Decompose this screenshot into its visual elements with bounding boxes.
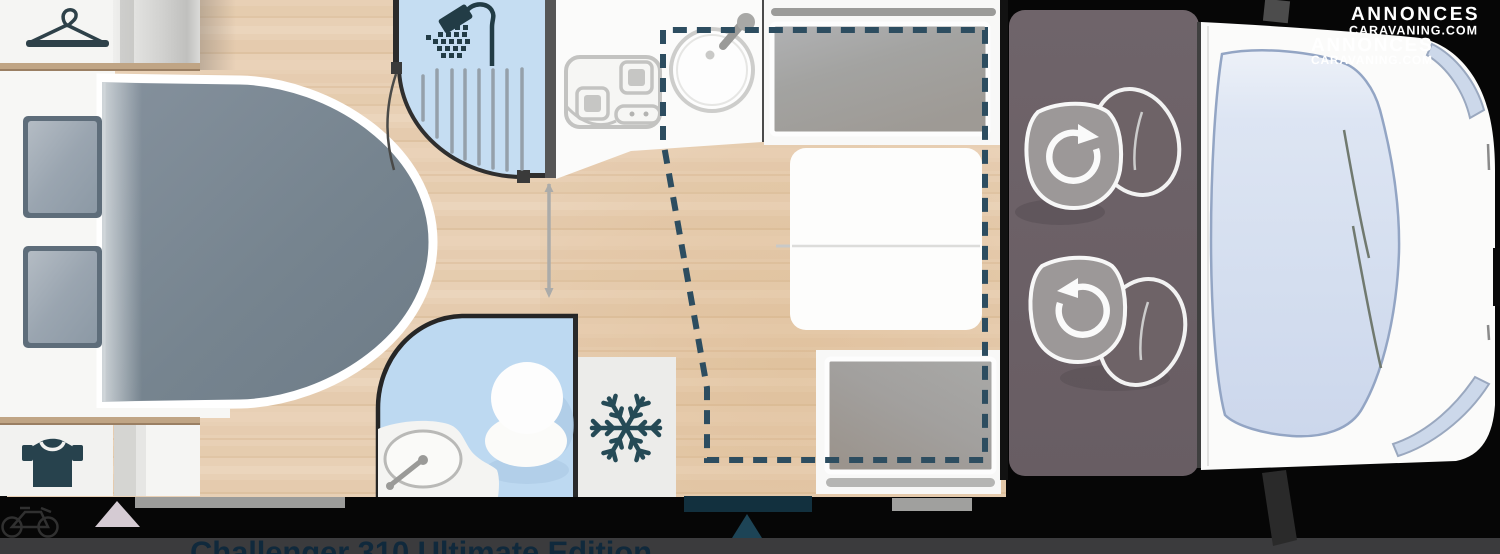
svg-text:Challenger 310 Ultimate Editio: Challenger 310 Ultimate Edition bbox=[190, 535, 652, 554]
svg-text:ANNONCES: ANNONCES bbox=[1351, 4, 1478, 25]
svg-text:CARAVANING.COM: CARAVANING.COM bbox=[1311, 53, 1432, 67]
